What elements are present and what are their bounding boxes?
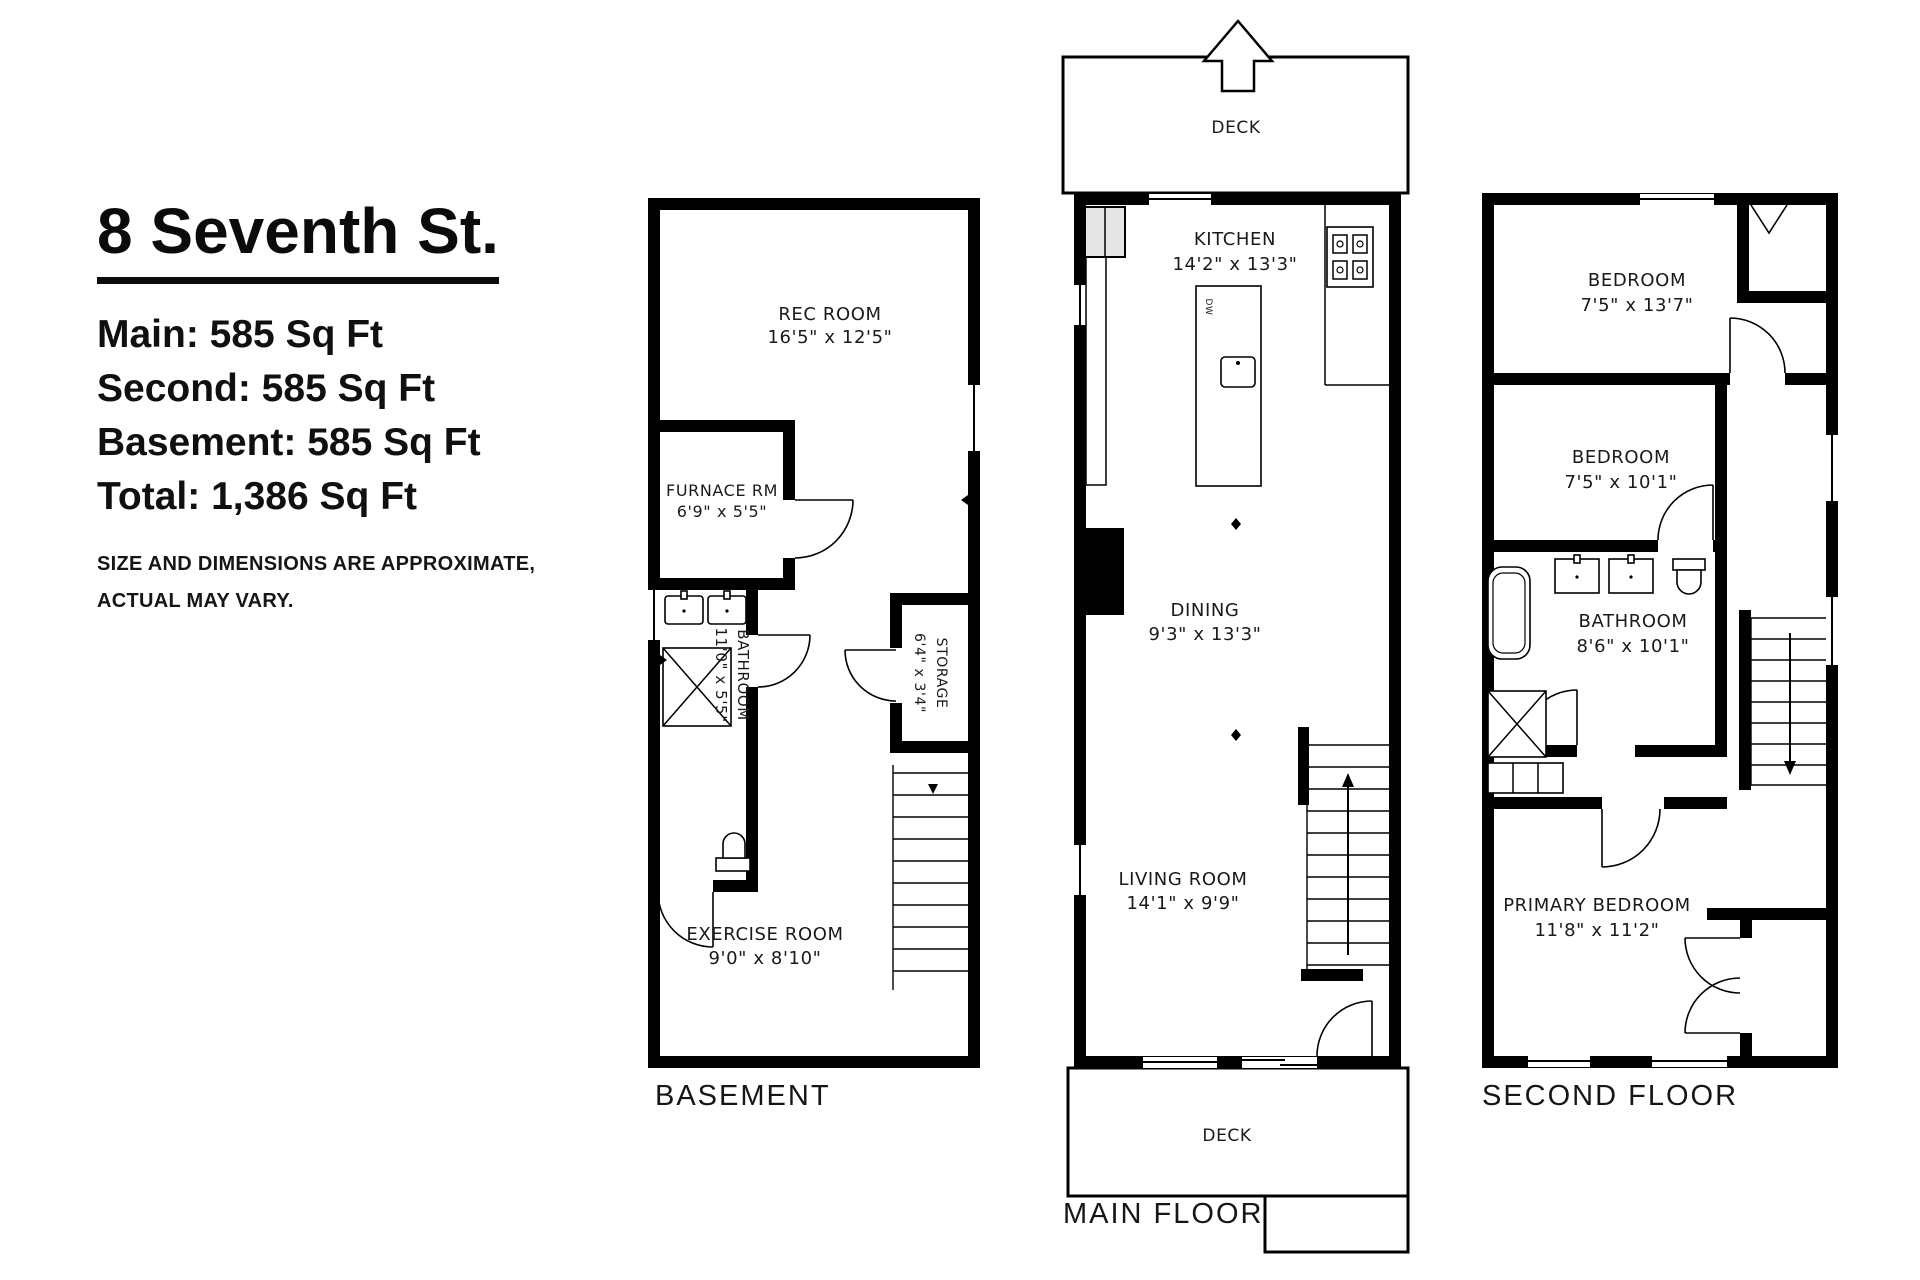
basement-floorplan: REC ROOM 16'5" x 12'5" FURNACE RM 6'9" x… [645, 190, 990, 1130]
room-dims-bedroom1: 7'5" x 13'7" [1580, 295, 1693, 316]
room-dims-bathroom: 11'0" x 5'5" [712, 627, 730, 722]
area-main: Main: 585 Sq Ft [97, 308, 535, 362]
page-title: 8 Seventh St. [97, 198, 499, 284]
title-block: 8 Seventh St. Main: 585 Sq Ft Second: 58… [97, 198, 535, 620]
room-dims-dining: 9'3" x 13'3" [1148, 624, 1261, 645]
area-total: Total: 1,386 Sq Ft [97, 470, 535, 524]
room-label-dining: DINING [1171, 600, 1240, 621]
room-dims-exercise: 9'0" x 8'10" [708, 948, 821, 969]
room-label-kitchen: KITCHEN [1194, 229, 1276, 250]
main-floor-label: MAIN FLOOR [1063, 1198, 1263, 1231]
room-label-bedroom2: BEDROOM [1572, 447, 1670, 468]
room-label-furnace: FURNACE RM [666, 481, 778, 500]
floorplan-sheet: 8 Seventh St. Main: 585 Sq Ft Second: 58… [0, 0, 1920, 1280]
disclaimer: SIZE AND DIMENSIONS ARE APPROXIMATE, ACT… [97, 546, 535, 620]
room-label-living: LIVING ROOM [1118, 869, 1247, 890]
area-basement: Basement: 585 Sq Ft [97, 416, 535, 470]
second-floorplan: BEDROOM 7'5" x 13'7" BEDROOM 7'5" x 10'1… [1475, 185, 1845, 1080]
disclaimer-line-1: SIZE AND DIMENSIONS ARE APPROXIMATE, [97, 546, 535, 583]
room-label-bathroom: BATHROOM [734, 629, 752, 721]
room-label-primary: PRIMARY BEDROOM [1503, 895, 1691, 916]
second-floor-label: SECOND FLOOR [1482, 1080, 1738, 1113]
room-dims-furnace: 6'9" x 5'5" [677, 502, 767, 521]
room-dims-rec: 16'5" x 12'5" [767, 327, 892, 348]
kitchen-island: DW [1196, 286, 1261, 486]
area-summary: Main: 585 Sq Ft Second: 585 Sq Ft Baseme… [97, 308, 535, 524]
room-dims-bathroom2: 8'6" x 10'1" [1576, 636, 1689, 657]
main-floorplan: DW [1055, 15, 1415, 1260]
room-dims-living: 14'1" x 9'9" [1126, 893, 1239, 914]
room-label-bathroom2: BATHROOM [1579, 611, 1688, 632]
second-shower-icon [1488, 691, 1546, 757]
area-second: Second: 585 Sq Ft [97, 362, 535, 416]
basement-label: BASEMENT [655, 1080, 831, 1113]
room-dims-bedroom2: 7'5" x 10'1" [1564, 472, 1677, 493]
fridge-icon [1085, 207, 1125, 257]
deck-step [1265, 1196, 1408, 1252]
room-label-bedroom1: BEDROOM [1588, 270, 1686, 291]
room-label-exercise: EXERCISE ROOM [686, 924, 843, 945]
room-label-rec: REC ROOM [778, 304, 881, 325]
room-label-storage: STORAGE [933, 638, 949, 709]
deck-bottom-label: DECK [1202, 1126, 1252, 1146]
dishwasher-label: DW [1203, 298, 1213, 315]
room-dims-kitchen: 14'2" x 13'3" [1172, 254, 1297, 275]
chimney [1074, 528, 1124, 615]
bathtub-icon [1488, 567, 1530, 659]
disclaimer-line-2: ACTUAL MAY VARY. [97, 583, 535, 620]
deck-top-label: DECK [1211, 118, 1261, 138]
room-dims-primary: 11'8" x 11'2" [1534, 920, 1659, 941]
linen-closet [1488, 763, 1563, 793]
room-dims-storage: 6'4" x 3'4" [911, 633, 927, 713]
